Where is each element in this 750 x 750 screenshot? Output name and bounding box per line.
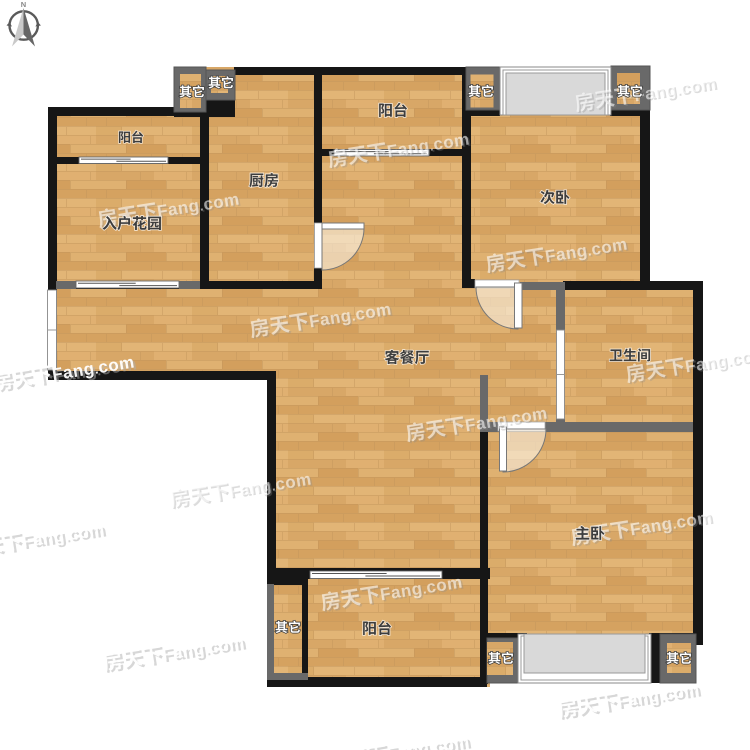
svg-text:N: N [21, 0, 26, 9]
